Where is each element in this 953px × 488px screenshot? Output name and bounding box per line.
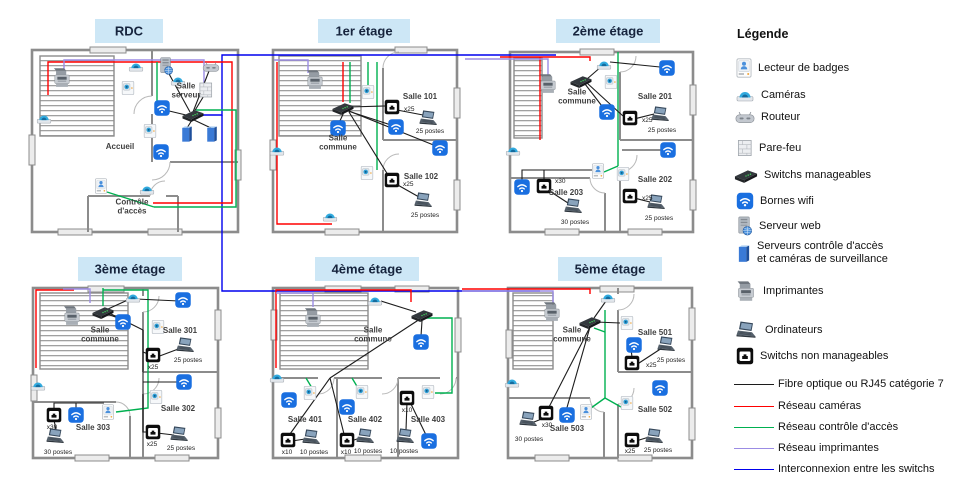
access-server-icon (737, 242, 751, 263)
camera-icon (735, 88, 755, 102)
window (506, 330, 512, 358)
wifi-ap-icon (559, 407, 574, 422)
legend-title: Légende (737, 27, 788, 41)
badge-reader-icon (102, 405, 113, 420)
window (689, 408, 695, 440)
framed-camera-icon (617, 167, 629, 180)
framed-camera-icon (362, 85, 374, 98)
floor-title: RDC (115, 24, 144, 39)
wifi-ap-icon (599, 104, 614, 119)
stairs (279, 56, 361, 136)
count-label: x25 (148, 364, 159, 371)
room-label: Salle 502 (638, 405, 673, 414)
framed-camera-icon (621, 316, 633, 329)
firewall-icon (737, 139, 753, 157)
room-label: Contrôled'accès (116, 198, 149, 216)
fiber-line-swatch (734, 384, 774, 385)
legend: Légende Lecteur de badges Caméras Routeu… (734, 0, 953, 488)
window (215, 408, 221, 438)
badge-reader-icon (95, 179, 106, 194)
floor-etage-2-title: 2ème étage (556, 19, 660, 43)
floor-etage-1-title: 1er étage (318, 19, 410, 43)
window (58, 229, 92, 235)
room-label: Accueil (106, 142, 134, 151)
window (690, 85, 696, 115)
count-label: 10 postes (390, 448, 419, 455)
legend-item-web-server: Serveur web (736, 216, 821, 236)
legend-line-label: Fibre optique ou RJ45 catégorie 7 (778, 378, 944, 390)
window (455, 318, 461, 352)
legend-line-label: Réseau imprimantes (778, 442, 879, 454)
wifi-ap-icon (659, 60, 674, 75)
unmanaged-switch-icon (400, 391, 415, 406)
room-label: Salle 303 (76, 423, 111, 432)
floor-etage-4-title: 4ème étage (315, 257, 419, 281)
wifi-ap-icon (652, 380, 667, 395)
count-label: x25 (403, 181, 414, 188)
stairs (40, 56, 114, 136)
framed-camera-icon (422, 385, 434, 398)
unmanaged-switch-icon (625, 433, 640, 448)
window (148, 229, 182, 235)
stairs (40, 293, 128, 369)
router-icon (735, 111, 755, 124)
legend-line-label: Réseau caméras (778, 400, 861, 412)
wifi-ap-icon (432, 140, 447, 155)
unmanaged-switch-icon (539, 406, 554, 421)
window (395, 47, 427, 53)
legend-line-label: Interconnexion entre les switchs (778, 463, 935, 475)
window (454, 180, 460, 210)
room-label: Salle 402 (348, 415, 383, 424)
room-label: Salle 401 (288, 415, 323, 424)
floor-title: 2ème étage (573, 24, 644, 39)
floor-etage-5-title: 5ème étage (558, 257, 662, 281)
room-label: Salle 503 (550, 424, 585, 433)
count-label: x25 (625, 448, 636, 455)
window (690, 180, 696, 210)
wifi-ap-icon (660, 142, 675, 157)
legend-item-wifi: Bornes wifi (736, 192, 814, 210)
wifi-ap-icon (339, 399, 354, 414)
unmanaged-switch-icon (736, 347, 754, 365)
window (454, 88, 460, 118)
floor-title: 5ème étage (575, 262, 646, 277)
wifi-ap-icon (388, 119, 403, 134)
window (325, 229, 359, 235)
wifi-ap-icon (115, 314, 130, 329)
legend-item-access-server: Serveurs contrôle d'accès et caméras de … (737, 240, 888, 265)
count-label: x25 (642, 195, 653, 202)
room-label: Salle 202 (638, 175, 673, 184)
room-label: Sal​le 501 (638, 328, 673, 337)
legend-line-fiber: Fibre optique ou RJ45 catégorie 7 (734, 378, 944, 390)
computer-icon (735, 320, 759, 340)
count-label: 25 postes (645, 215, 674, 222)
window (545, 229, 579, 235)
floor-etage-5-structure (506, 286, 695, 461)
unmanaged-switch-icon (146, 425, 161, 440)
badge-reader-icon (736, 58, 752, 78)
interconnect-line-swatch (734, 469, 774, 470)
count-label: x30 (555, 178, 566, 185)
room-label: Salle 302 (161, 404, 196, 413)
room-label: Salle 403 (411, 415, 446, 424)
window (29, 135, 35, 165)
legend-item-label: Serveurs contrôle d'accès et caméras de … (757, 240, 888, 265)
wifi-ap-icon (153, 144, 168, 159)
access-line-swatch (734, 427, 774, 428)
legend-item-label: Lecteur de badges (758, 62, 849, 75)
floor-etage-2-structure (510, 49, 696, 235)
legend-item-label: Switchs manageables (764, 169, 871, 182)
framed-camera-icon (621, 396, 633, 409)
unmanaged-switch-icon (625, 356, 640, 371)
window (580, 49, 614, 55)
count-label: 25 postes (174, 357, 203, 364)
legend-line-access: Réseau contrôle d'accès (734, 421, 898, 433)
legend-item-label: Pare-feu (759, 142, 801, 155)
wifi-ap-icon (421, 433, 436, 448)
legend-item-label: Serveur web (759, 220, 821, 233)
count-label: x25 (147, 441, 158, 448)
printer-line-swatch (734, 448, 774, 449)
wifi-ap-icon (154, 100, 169, 115)
room-label: Salle 203 (549, 188, 584, 197)
stairs (514, 58, 542, 138)
count-label: x30 (542, 422, 553, 429)
legend-item-managed-switch: Switchs manageables (734, 168, 871, 183)
legend-item-label: Ordinateurs (765, 324, 822, 337)
floor-title: 1er étage (335, 24, 392, 39)
printer-icon (735, 280, 757, 303)
legend-item-label: Bornes wifi (760, 195, 814, 208)
count-label: 25 postes (644, 447, 673, 454)
legend-item-label: Caméras (761, 89, 806, 102)
wifi-ap-icon (413, 334, 428, 349)
count-label: 10 postes (354, 448, 383, 455)
legend-item-label: Switchs non manageables (760, 350, 888, 363)
window (689, 308, 695, 340)
count-label: 25 postes (411, 212, 440, 219)
window (88, 286, 124, 292)
access-server-icon (207, 127, 217, 142)
window (535, 455, 569, 461)
count-label: 25 postes (648, 127, 677, 134)
framed-camera-icon (150, 390, 162, 403)
count-label: x10 (402, 407, 413, 414)
unmanaged-switch-icon (47, 408, 62, 423)
legend-item-router: Routeur (735, 111, 800, 124)
count-label: 25 postes (657, 357, 686, 364)
badge-reader-icon (592, 164, 603, 179)
legend-item-label: Routeur (761, 111, 800, 124)
floor-etage-3-title: 3ème étage (78, 257, 182, 281)
count-label: x10 (341, 449, 352, 456)
framed-camera-icon (605, 75, 617, 88)
badge-reader-icon (580, 405, 591, 420)
window (628, 229, 662, 235)
unmanaged-switch-icon (385, 100, 400, 115)
unmanaged-switch-icon (623, 111, 638, 126)
window (618, 455, 652, 461)
count-label: x25 (642, 117, 653, 124)
wifi-ap-icon (68, 407, 83, 422)
stairs (280, 293, 368, 369)
count-label: x25 (646, 362, 657, 369)
wifi-icon (736, 192, 754, 210)
legend-item-label: Imprimantes (763, 285, 824, 298)
wifi-ap-icon (176, 374, 191, 389)
window (90, 47, 126, 53)
framed-camera-icon (356, 385, 368, 398)
legend-line-label: Réseau contrôle d'accès (778, 421, 898, 433)
count-label: 25 postes (416, 128, 445, 135)
access-server-icon (182, 127, 192, 142)
legend-line-cameras: Réseau caméras (734, 400, 861, 412)
firewall-icon (200, 83, 212, 97)
count-label: 25 postes (167, 445, 196, 452)
web-server-icon (736, 216, 753, 236)
framed-camera-icon (144, 124, 156, 137)
legend-item-cameras: Caméras (735, 88, 806, 102)
unmanaged-switch-icon (340, 433, 355, 448)
unmanaged-switch-icon (281, 433, 296, 448)
legend-item-unmanaged-switch: Switchs non manageables (736, 347, 888, 365)
count-label: x30 (47, 424, 58, 431)
legend-item-computer: Ordinateurs (735, 320, 822, 340)
count-label: x25 (404, 106, 415, 113)
network-diagram-page: SalleserveurAccueilContrôled'accèsSallec… (0, 0, 953, 488)
window (75, 455, 109, 461)
count-label: 30 postes (561, 219, 590, 226)
count-label: 30 postes (515, 436, 544, 443)
room-label: Salle 101 (403, 92, 438, 101)
framed-camera-icon (361, 166, 373, 179)
window (155, 455, 189, 461)
room-label: Salle 201 (638, 92, 673, 101)
managed-switch-icon (734, 168, 758, 183)
legend-line-interconnect: Interconnexion entre les switchs (734, 463, 935, 475)
window (215, 310, 221, 340)
room-label: Salle 102 (404, 172, 439, 181)
legend-item-firewall: Pare-feu (737, 139, 801, 157)
camera-line-swatch (734, 406, 774, 407)
wifi-ap-icon (626, 337, 641, 352)
room-label: Salle 301 (163, 326, 198, 335)
floor-title: 4ème étage (332, 262, 403, 277)
unmanaged-switch-icon (146, 348, 161, 363)
framed-camera-icon (304, 386, 316, 399)
unmanaged-switch-icon (623, 189, 638, 204)
wifi-ap-icon (175, 292, 190, 307)
wifi-ap-icon (281, 392, 296, 407)
floor-title: 3ème étage (95, 262, 166, 277)
legend-item-badge-reader: Lecteur de badges (736, 58, 849, 78)
count-label: 30 postes (44, 449, 73, 456)
wifi-ap-icon (514, 179, 529, 194)
legend-line-printers: Réseau imprimantes (734, 442, 879, 454)
legend-item-printer: Imprimantes (735, 280, 824, 303)
floor-rdc-title: RDC (95, 19, 163, 43)
framed-camera-icon (122, 81, 134, 94)
unmanaged-switch-icon (385, 173, 400, 188)
count-label: 10 postes (300, 449, 329, 456)
count-label: x10 (282, 449, 293, 456)
